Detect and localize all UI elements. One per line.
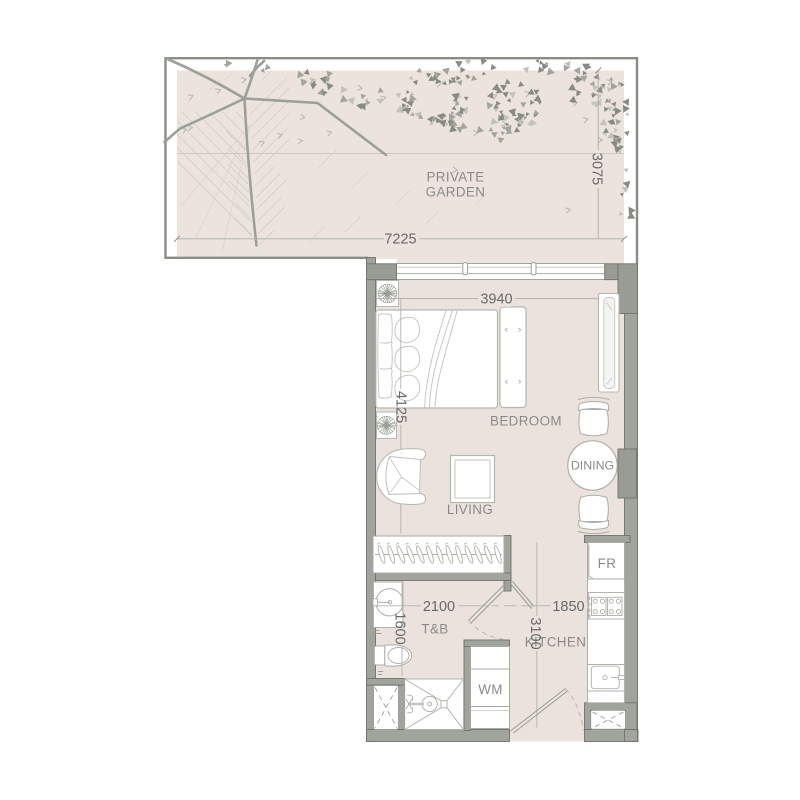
svg-text:BEDROOM: BEDROOM [490, 414, 562, 429]
svg-text:4125: 4125 [392, 391, 408, 423]
svg-text:3940: 3940 [480, 292, 512, 308]
svg-text:1850: 1850 [552, 599, 584, 615]
svg-text:PRIVATE: PRIVATE [426, 170, 484, 185]
svg-text:T&B: T&B [421, 621, 448, 636]
svg-text:FR: FR [598, 556, 617, 571]
svg-text:GARDEN: GARDEN [426, 185, 486, 200]
svg-text:DINING: DINING [571, 459, 614, 473]
svg-text:LIVING: LIVING [447, 502, 493, 517]
svg-text:2100: 2100 [423, 599, 455, 615]
svg-text:1600: 1600 [392, 612, 408, 644]
svg-text:3075: 3075 [589, 153, 605, 185]
svg-text:3100: 3100 [527, 617, 543, 649]
svg-text:7225: 7225 [384, 232, 416, 248]
svg-text:WM: WM [478, 682, 503, 697]
